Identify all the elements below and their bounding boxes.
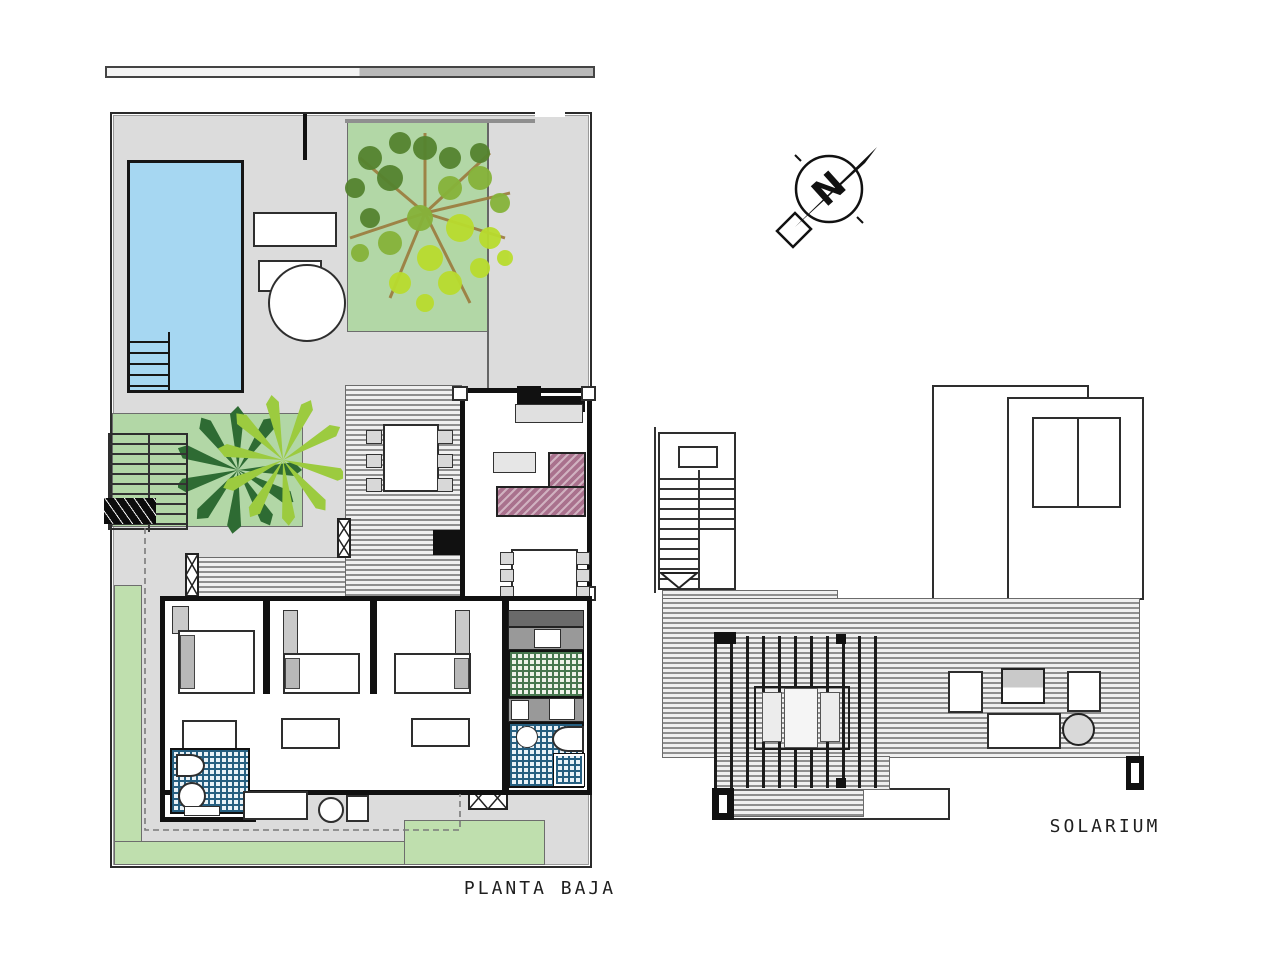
solarium-armchair (948, 671, 983, 713)
solarium-armchair (1067, 671, 1101, 712)
solarium-label: SOLARIUM (1035, 816, 1175, 837)
compass-north-arrow-icon: N (765, 135, 895, 255)
floor-plan-canvas: PLANTA BAJA (0, 0, 1280, 960)
deck-corner-post (1126, 756, 1144, 790)
solarium-bench (987, 713, 1061, 749)
solarium-deck-step (730, 790, 864, 817)
skylight-mullion (1077, 419, 1079, 506)
solarium-plan: SOLARIUM (0, 0, 1280, 960)
stair-divider (698, 470, 700, 588)
solarium-stair (658, 432, 736, 590)
solarium-loveseat (1001, 668, 1045, 704)
pergola-chair-right (820, 692, 840, 742)
solarium-stair-wall (654, 427, 656, 593)
skylight-window (1032, 417, 1121, 508)
solarium-round-table (1062, 713, 1095, 746)
pergola-chair-left (762, 692, 782, 742)
svg-text:N: N (804, 164, 854, 215)
pergola-table (784, 688, 818, 748)
stair-flight-right (700, 470, 734, 532)
pergola-post (836, 634, 846, 644)
pergola-post (714, 632, 736, 644)
pergola-post (836, 778, 846, 788)
post-slot (719, 795, 728, 813)
post-slot (1131, 763, 1138, 782)
deck-corner-post (712, 788, 734, 820)
stair-direction-arrow (660, 572, 698, 590)
stair-flight-left (660, 470, 698, 588)
stair-landing (678, 446, 718, 468)
